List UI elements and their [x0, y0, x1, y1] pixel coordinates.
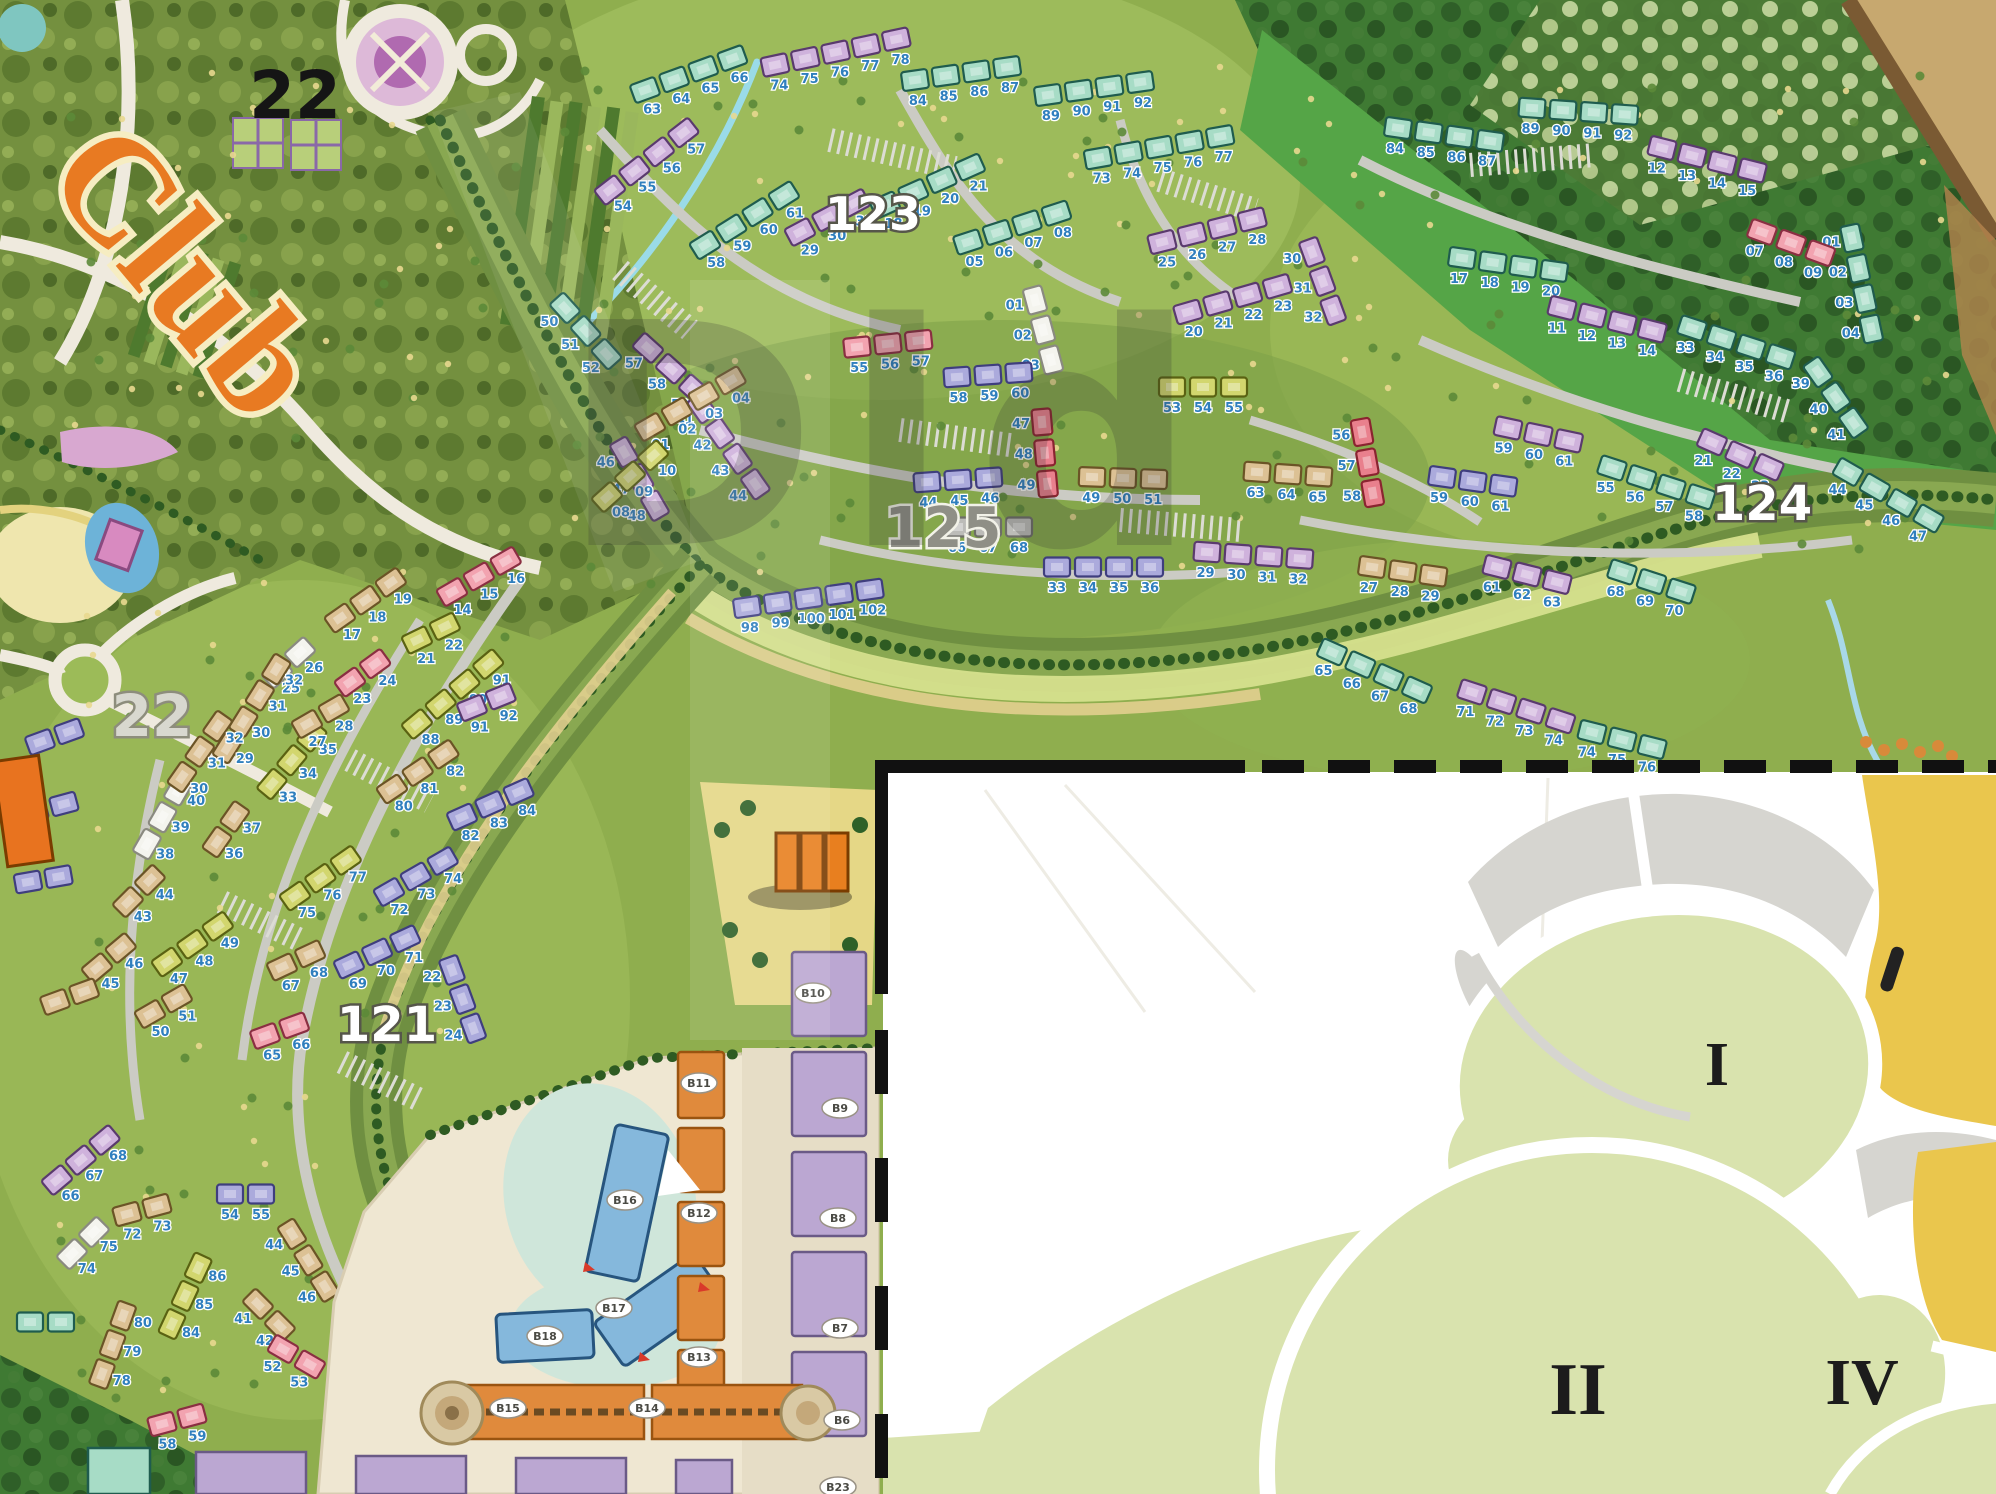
- tree-dot: [230, 152, 236, 158]
- house-number: 60: [1461, 495, 1479, 510]
- tree-dot: [72, 422, 78, 428]
- tree-dot: [1273, 451, 1282, 460]
- tree-dot: [1647, 447, 1656, 456]
- tree-dot: [1729, 398, 1735, 404]
- tree-dot: [1177, 119, 1183, 125]
- tree-dot: [749, 100, 758, 109]
- house-number: 79: [123, 1345, 141, 1360]
- house-icon: [14, 870, 43, 893]
- house-number: 17: [1450, 272, 1468, 287]
- tree-dot: [268, 946, 274, 952]
- building-tag-label: B12: [687, 1207, 711, 1220]
- house-number: 67: [85, 1169, 103, 1184]
- tree-dot: [121, 599, 127, 605]
- house-number: 61: [1483, 580, 1501, 595]
- house-number: 36: [1765, 370, 1783, 385]
- house-number: 85: [1417, 146, 1435, 161]
- tree-dot: [347, 107, 353, 113]
- tree-dot: [724, 245, 730, 251]
- house-icon: [1255, 546, 1282, 567]
- tree-dot: [1366, 304, 1372, 310]
- house-icon: [1859, 314, 1883, 343]
- house-number: 13: [1608, 336, 1626, 351]
- tree-dot: [196, 1043, 202, 1049]
- house-icon: [217, 1185, 243, 1204]
- house-number: 59: [1495, 442, 1513, 457]
- border-dash: [875, 1030, 888, 1094]
- house-number: 45: [101, 977, 119, 992]
- house-icon: [1095, 75, 1123, 97]
- house-number: 60: [1525, 448, 1543, 463]
- house-number: 82: [446, 765, 464, 780]
- house-number: 62: [1513, 588, 1531, 603]
- tree-dot: [1351, 172, 1357, 178]
- house-number: 47: [170, 972, 188, 987]
- house-number: 58: [1685, 510, 1703, 525]
- house-number: 80: [395, 799, 413, 814]
- label-district-123: 123: [825, 187, 921, 241]
- house-number: 31: [269, 700, 287, 715]
- tree-dot: [246, 672, 255, 681]
- house-number: 29: [236, 752, 254, 767]
- house-icon: [851, 34, 880, 58]
- house-number: 64: [1277, 488, 1295, 503]
- border-dash: [1592, 760, 1634, 773]
- building-tag-label: B6: [834, 1414, 850, 1427]
- house-icon: [1305, 466, 1332, 487]
- tree-dot: [1118, 128, 1127, 137]
- house-number: 86: [1447, 150, 1465, 165]
- tree-dot: [407, 354, 413, 360]
- house-icon: [1445, 125, 1473, 147]
- house-number: 65: [1308, 490, 1326, 505]
- building-tag-label: B15: [496, 1402, 520, 1415]
- tree-dot: [302, 1094, 308, 1100]
- house-number: 33: [1676, 341, 1694, 356]
- tree-dot: [241, 1104, 247, 1110]
- house-icon: [1350, 418, 1373, 447]
- house-icon: [1361, 479, 1384, 508]
- inset-map[interactable]: IIIIV: [875, 760, 1996, 1494]
- house-icon: [1286, 548, 1313, 569]
- house-number: 44: [265, 1238, 283, 1253]
- master-plan-map[interactable]: 6364656674757677788485868789909192545556…: [0, 0, 1996, 1494]
- house-number: 04: [1842, 326, 1860, 341]
- house-number: 89: [1042, 109, 1060, 124]
- tree-dot: [1777, 109, 1783, 115]
- border-dash: [1790, 760, 1832, 773]
- tree-dot: [1264, 495, 1273, 504]
- house-number: 61: [786, 207, 804, 222]
- house-icon: [1540, 260, 1568, 282]
- tree-dot: [437, 1028, 443, 1034]
- house-number: 16: [507, 572, 525, 587]
- house-number: 44: [156, 888, 174, 903]
- watermark-text: Dld: [560, 258, 1224, 619]
- house-icon: [901, 69, 929, 91]
- tree-dot: [436, 243, 442, 249]
- tree-dot: [1073, 153, 1079, 159]
- tree-dot: [1532, 140, 1541, 149]
- tree-dot: [269, 893, 275, 899]
- tree-dot: [155, 610, 161, 616]
- tree-dot: [1068, 172, 1074, 178]
- tree-dot: [561, 128, 570, 137]
- house-icon: [1384, 117, 1412, 139]
- building-tag-label: B8: [830, 1212, 846, 1225]
- border-dash: [1724, 760, 1766, 773]
- house-number: 11: [1548, 321, 1566, 336]
- house-number: 74: [1123, 166, 1141, 181]
- house-number: 15: [1738, 184, 1756, 199]
- border-dash: [1328, 760, 1370, 773]
- house-number: 46: [298, 1291, 316, 1306]
- house-number: 14: [453, 603, 471, 618]
- house-number: 23: [353, 692, 371, 707]
- house-number: 41: [234, 1312, 252, 1327]
- house-number: 84: [182, 1326, 200, 1341]
- inset-zone-IV: IV: [1825, 1346, 1898, 1419]
- tree-dot: [997, 158, 1003, 164]
- house-number: 67: [1371, 689, 1389, 704]
- house-number: 90: [1552, 124, 1570, 139]
- house-icon: [1459, 470, 1487, 492]
- house-icon: [1518, 98, 1545, 119]
- house-number: 75: [100, 1240, 118, 1255]
- tree-dot: [180, 1190, 189, 1199]
- building-tag-label: B11: [687, 1077, 711, 1090]
- house-number: 45: [1855, 499, 1873, 514]
- tree-dot: [375, 299, 384, 308]
- tree-dot: [857, 97, 866, 106]
- tree-dot: [1299, 158, 1308, 167]
- building-tag-label: B9: [832, 1102, 848, 1115]
- tree-dot: [1648, 84, 1657, 93]
- house-number: 39: [1792, 377, 1810, 392]
- house-number: 72: [1486, 715, 1504, 730]
- house-number: 85: [940, 89, 958, 104]
- house-number: 02: [1829, 266, 1847, 281]
- house-number: 74: [1578, 745, 1596, 760]
- house-icon: [1479, 251, 1507, 273]
- house-icon: [1221, 378, 1247, 397]
- tree-dot: [1920, 159, 1926, 165]
- house-number: 77: [861, 59, 879, 74]
- house-number: 41: [1827, 428, 1845, 443]
- house-number: 70: [1665, 604, 1683, 619]
- house-number: 77: [349, 871, 367, 886]
- house-number: 19: [1511, 280, 1529, 295]
- house-number: 13: [1678, 169, 1696, 184]
- tree-dot: [501, 633, 510, 642]
- house-number: 72: [390, 903, 408, 918]
- house-number: 07: [1746, 245, 1764, 260]
- house-number: 39: [172, 821, 190, 836]
- house-number: 22: [445, 638, 463, 653]
- house-number: 33: [279, 790, 297, 805]
- house-number: 57: [1338, 459, 1356, 474]
- house-number: 21: [1694, 454, 1712, 469]
- tree-dot: [471, 257, 480, 266]
- house-number: 82: [461, 829, 479, 844]
- house-number: 30: [1283, 252, 1301, 267]
- tree-dot: [1228, 370, 1234, 376]
- tree-dot: [1431, 191, 1440, 200]
- house-number: 78: [113, 1374, 131, 1389]
- tree-dot: [930, 105, 936, 111]
- tree-dot: [1914, 315, 1920, 321]
- house-icon: [1389, 560, 1417, 582]
- house-number: 32: [285, 673, 303, 688]
- house-number: 29: [801, 244, 819, 259]
- house-number: 59: [1430, 491, 1448, 506]
- house-number: 03: [1835, 296, 1853, 311]
- house-number: 76: [1184, 156, 1202, 171]
- tree-dot: [57, 1237, 66, 1246]
- house-number: 91: [1103, 100, 1121, 115]
- tree-dot: [389, 122, 395, 128]
- tree-dot: [1250, 361, 1256, 367]
- house-number: 65: [701, 82, 719, 97]
- house-number: 30: [190, 782, 208, 797]
- house-number: 92: [500, 709, 518, 724]
- house-number: 70: [377, 964, 395, 979]
- tree-dot: [1258, 407, 1264, 413]
- house-number: 17: [343, 628, 361, 643]
- house-icon: [1493, 416, 1522, 440]
- tree-dot: [261, 580, 267, 586]
- house-icon: [1145, 136, 1174, 159]
- house-number: 37: [243, 822, 261, 837]
- house-number: 65: [263, 1049, 281, 1064]
- house-number: 49: [221, 937, 239, 952]
- tree-dot: [714, 102, 723, 111]
- house-number: 54: [221, 1208, 239, 1223]
- house-number: 27: [1360, 581, 1378, 596]
- house-icon: [760, 53, 789, 77]
- house-icon: [1846, 254, 1870, 283]
- tree-dot: [380, 280, 389, 289]
- house-number: 55: [638, 180, 656, 195]
- tree-dot: [1785, 86, 1791, 92]
- house-number: 66: [292, 1038, 310, 1053]
- tree-dot: [1742, 276, 1751, 285]
- tree-dot: [1356, 201, 1365, 210]
- house-number: 29: [1421, 589, 1439, 604]
- house-number: 54: [614, 200, 632, 215]
- house-icon: [1549, 100, 1576, 121]
- house-icon: [882, 27, 911, 51]
- border-dash: [1526, 760, 1568, 773]
- tree-dot: [181, 1054, 190, 1063]
- border-dash: [1856, 760, 1898, 773]
- house-number: 80: [134, 1316, 152, 1331]
- tree-dot: [1803, 440, 1812, 449]
- tree-dot: [1220, 108, 1226, 114]
- house-icon: [1840, 223, 1864, 252]
- house-number: 58: [158, 1437, 176, 1452]
- tree-dot: [586, 145, 592, 151]
- building-tag-label: B13: [687, 1351, 711, 1364]
- house-number: 21: [969, 179, 987, 194]
- house-number: 74: [78, 1262, 96, 1277]
- tree-dot: [1217, 64, 1223, 70]
- house-number: 63: [643, 103, 661, 118]
- house-number: 34: [1706, 351, 1724, 366]
- house-icon: [1419, 564, 1447, 586]
- house-number: 86: [208, 1270, 226, 1285]
- house-number: 90: [1073, 104, 1091, 119]
- house-number: 28: [335, 720, 353, 735]
- house-icon: [1243, 462, 1270, 483]
- house-number: 31: [1258, 570, 1276, 585]
- building-tag-label: B7: [832, 1322, 848, 1335]
- house-number: 76: [831, 66, 849, 81]
- house-icon: [248, 1185, 274, 1204]
- house-icon: [1489, 474, 1517, 496]
- house-icon: [44, 865, 73, 888]
- house-number: 48: [195, 954, 213, 969]
- building-tag-label: B17: [602, 1302, 626, 1315]
- house-number: 68: [1606, 585, 1624, 600]
- tree-dot: [411, 395, 417, 401]
- house-number: 75: [298, 906, 316, 921]
- tree-dot: [284, 1102, 293, 1111]
- house-icon: [932, 64, 960, 86]
- tree-dot: [210, 1340, 216, 1346]
- tree-dot: [307, 689, 316, 698]
- tree-dot: [1232, 512, 1241, 521]
- house-icon: [1034, 84, 1062, 106]
- house-number: 47: [1909, 530, 1927, 545]
- building-tag-label: B14: [635, 1402, 659, 1415]
- tree-dot: [1843, 88, 1849, 94]
- label-plot-22-park: 22: [249, 57, 341, 134]
- border-dash: [1460, 760, 1502, 773]
- tree-dot: [594, 86, 603, 95]
- tree-dot: [1356, 315, 1362, 321]
- tree-dot: [211, 1369, 220, 1378]
- house-number: 87: [1001, 81, 1019, 96]
- house-number: 51: [178, 1010, 196, 1025]
- tree-dot: [251, 1138, 257, 1144]
- house-number: 74: [770, 79, 788, 94]
- house-number: 58: [1343, 490, 1361, 505]
- house-number: 68: [1399, 702, 1417, 717]
- tree-dot: [292, 434, 301, 443]
- tree-dot: [67, 113, 76, 122]
- border-dash: [1658, 760, 1700, 773]
- tree-dot: [95, 826, 101, 832]
- border-dash: [875, 1158, 888, 1222]
- tree-dot: [1308, 96, 1314, 102]
- house-number: 44: [1828, 483, 1846, 498]
- house-number: 68: [109, 1149, 127, 1164]
- house-number: 52: [263, 1360, 281, 1375]
- house-number: 56: [663, 161, 681, 176]
- house-number: 59: [188, 1429, 206, 1444]
- tree-dot: [1493, 383, 1499, 389]
- house-number: 12: [1578, 329, 1596, 344]
- house-icon: [791, 47, 820, 71]
- inset-zone-I: I: [1705, 1031, 1729, 1099]
- house-icon: [1428, 466, 1456, 488]
- border-dash: [1262, 760, 1304, 773]
- house-number: 28: [1391, 585, 1409, 600]
- house-number: 75: [801, 72, 819, 87]
- house-number: 71: [1456, 705, 1474, 720]
- inset-zone-II: II: [1549, 1349, 1607, 1431]
- tree-dot: [1379, 191, 1385, 197]
- house-number: 88: [421, 733, 439, 748]
- house-number: 26: [305, 661, 323, 676]
- house-number: 27: [308, 735, 326, 750]
- tree-dot: [262, 1161, 268, 1167]
- house-number: 15: [480, 588, 498, 603]
- house-number: 92: [1134, 96, 1152, 111]
- house-number: 74: [444, 872, 462, 887]
- tree-dot: [752, 111, 758, 117]
- tree-dot: [210, 642, 216, 648]
- tree-dot: [1246, 404, 1252, 410]
- tree-dot: [210, 873, 219, 882]
- border-dash: [1922, 760, 1964, 773]
- tree-dot: [448, 887, 457, 896]
- house-number: 92: [1614, 128, 1632, 143]
- tree-dot: [1342, 357, 1348, 363]
- house-number: 68: [310, 966, 328, 981]
- building-tag-label: B16: [613, 1194, 637, 1207]
- tree-dot: [250, 1380, 259, 1389]
- tree-dot: [1295, 488, 1304, 497]
- tree-dot: [1580, 155, 1586, 161]
- tree-dot: [581, 67, 590, 76]
- house-number: 14: [1638, 344, 1656, 359]
- tree-dot: [955, 133, 964, 142]
- house-number: 74: [1545, 734, 1563, 749]
- tree-dot: [1427, 222, 1433, 228]
- house-number: 61: [1555, 454, 1573, 469]
- house-number: 32: [1304, 310, 1322, 325]
- tree-dot: [1811, 427, 1817, 433]
- house-icon: [1448, 247, 1476, 269]
- tree-dot: [217, 905, 223, 911]
- masterplan-screenshot: 6364656674757677788485868789909192545556…: [0, 0, 1996, 1494]
- house-number: 84: [518, 804, 536, 819]
- tree-dot: [90, 652, 96, 658]
- tree-dot: [78, 1369, 87, 1378]
- tree-dot: [757, 178, 763, 184]
- house-number: 08: [1775, 255, 1793, 270]
- house-number: 46: [1882, 514, 1900, 529]
- tree-dot: [159, 782, 165, 788]
- building-tag-label: B23: [826, 1481, 850, 1494]
- label-district-121: 121: [337, 997, 437, 1053]
- house-icon: [1509, 255, 1537, 277]
- house-icon: [1084, 146, 1113, 169]
- house-icon: [1206, 125, 1235, 148]
- house-number: 63: [1246, 486, 1264, 501]
- house-number: 19: [394, 593, 412, 608]
- house-number: 43: [134, 910, 152, 925]
- house-number: 32: [1289, 572, 1307, 587]
- house-icon: [48, 1313, 74, 1332]
- house-icon: [1274, 464, 1301, 485]
- tree-dot: [84, 613, 90, 619]
- tree-dot: [1523, 396, 1532, 405]
- tree-dot: [1598, 513, 1607, 522]
- house-number: 31: [1294, 281, 1312, 296]
